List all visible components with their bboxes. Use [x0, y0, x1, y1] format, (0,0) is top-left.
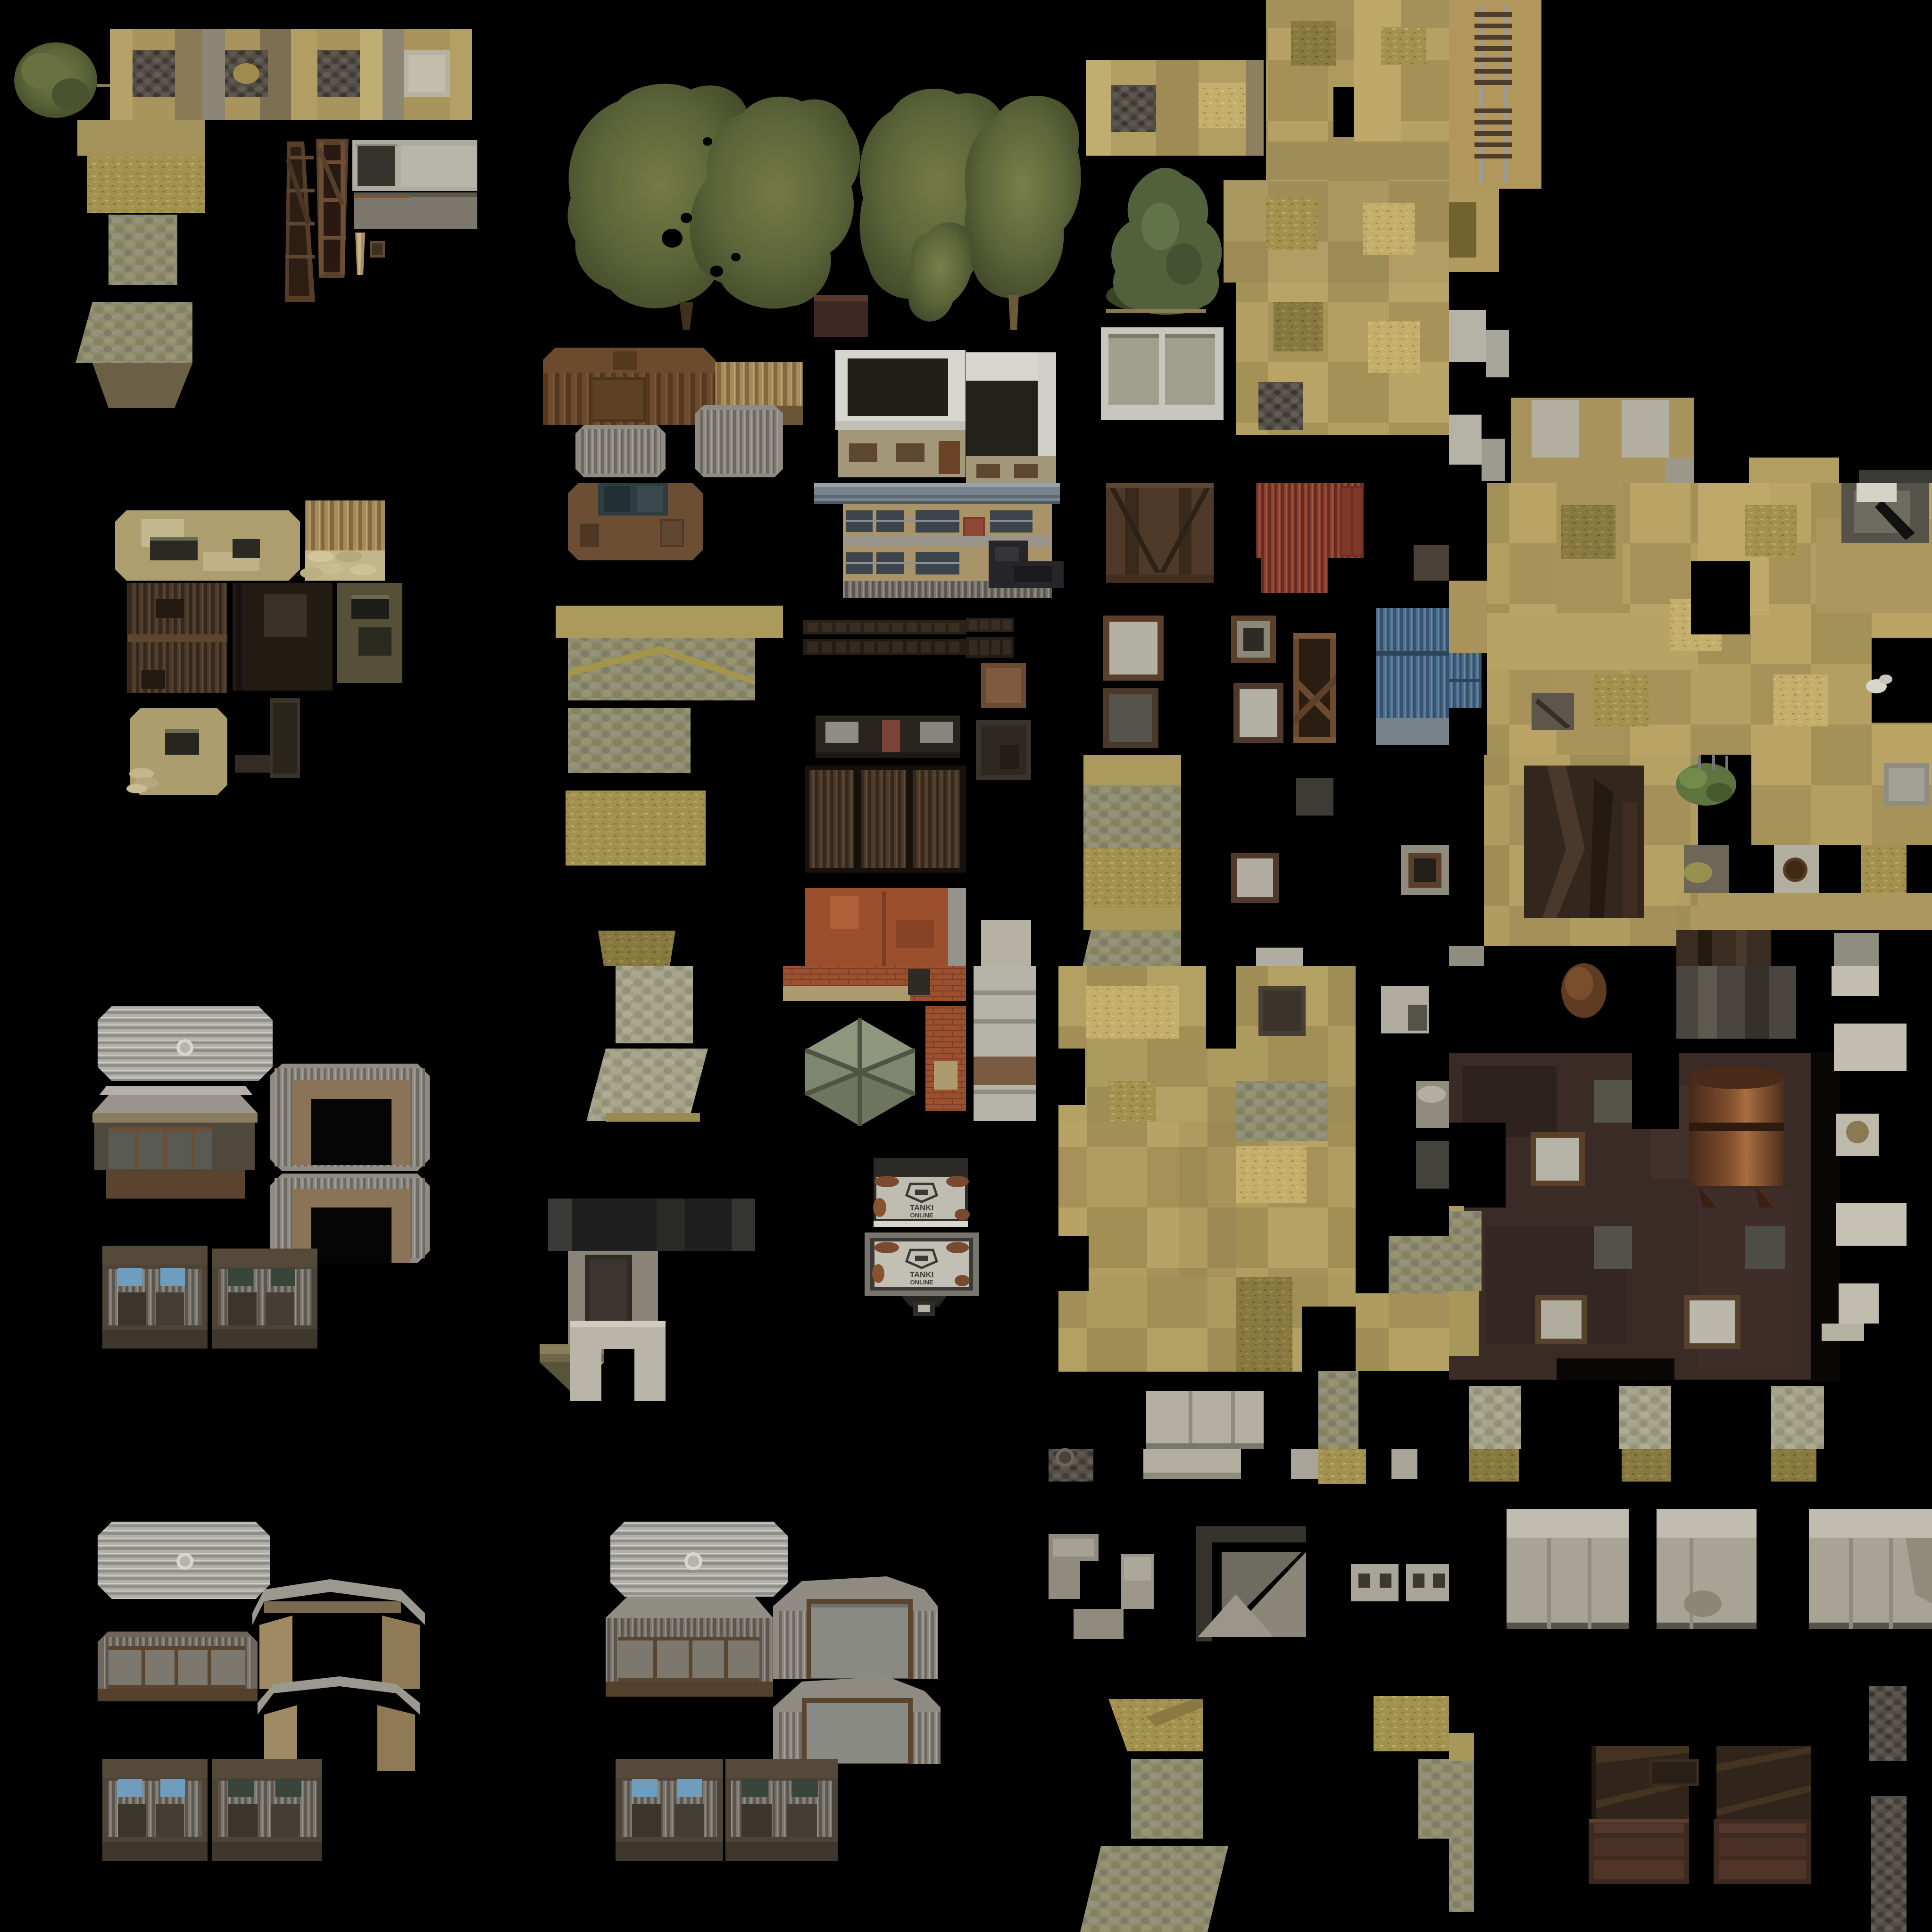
svg-text:TANKI: TANKI — [910, 1270, 934, 1279]
svg-text:ONLINE: ONLINE — [910, 1279, 933, 1286]
svg-text:ONLINE: ONLINE — [910, 1212, 933, 1219]
svg-text:TANKI: TANKI — [910, 1203, 934, 1212]
